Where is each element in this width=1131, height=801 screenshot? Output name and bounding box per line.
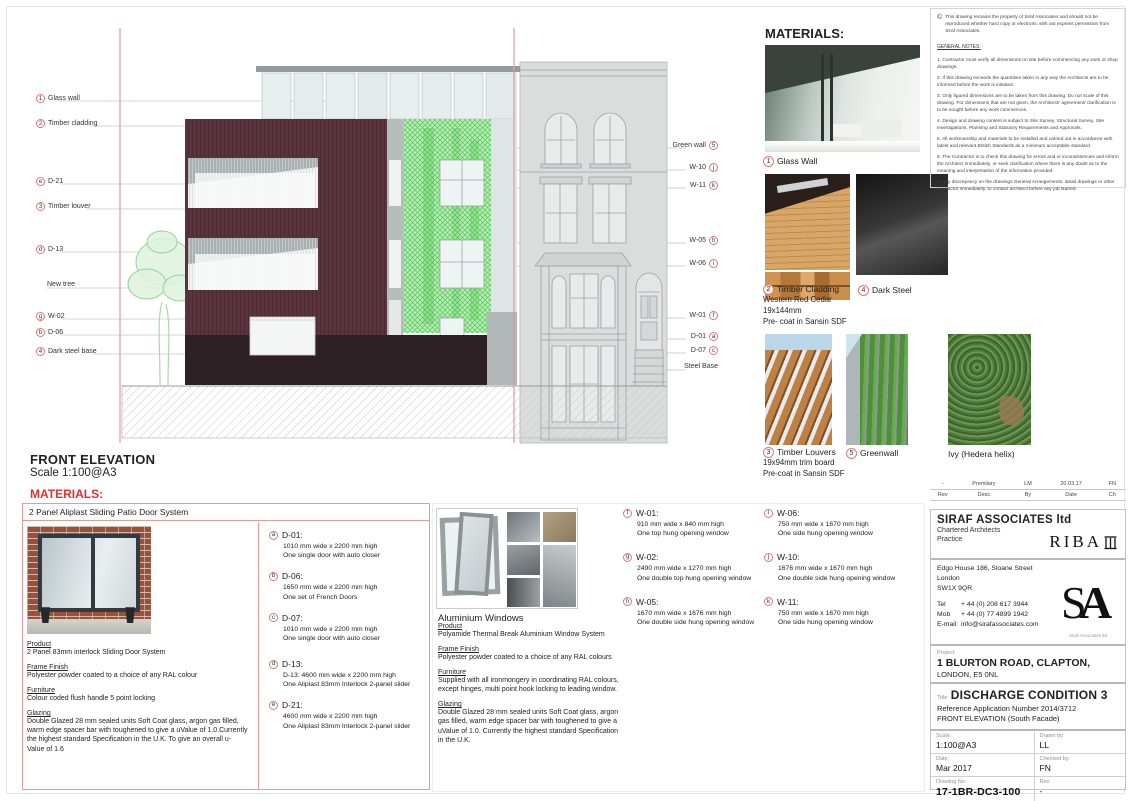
frame-finish-label: Frame Finish bbox=[27, 664, 248, 671]
siraf-associates-logo: S A Siraf Associates ltd bbox=[1057, 580, 1119, 638]
greenwall-photo bbox=[846, 334, 908, 445]
product-label: Product bbox=[27, 641, 248, 648]
note: 2. If this drawing exceeds the quantitie… bbox=[937, 75, 1119, 89]
meta-grid: Scale:1:100@A3 Drawn by:LL Date:Mar 2017… bbox=[931, 731, 1125, 801]
note: 4. Design and drawing content is subject… bbox=[937, 118, 1119, 132]
marker-4-icon: 4 bbox=[36, 347, 45, 356]
callout-d06: bD-06 bbox=[36, 328, 63, 337]
note: 7. Any discrepancy on the drawings Gener… bbox=[937, 179, 1119, 193]
materials-heading: MATERIALS: bbox=[765, 26, 844, 41]
window-schedule-item: gW-02: 2490 mm wide x 1270 mm high One d… bbox=[623, 552, 763, 582]
marker-d-icon: d bbox=[36, 245, 45, 254]
callout-d01: D-01a bbox=[558, 332, 718, 341]
contact-section: Edgo House 186, Sloane Street London SW1… bbox=[931, 560, 1125, 646]
project-address-line1: 1 BLURTON ROAD, CLAPTON, bbox=[937, 657, 1119, 669]
general-notes-panel: © This drawing remains the property of S… bbox=[930, 8, 1126, 188]
door-schedule-item: cD-07: 1010 mm wide x 2200 mm high One s… bbox=[269, 613, 425, 643]
callout-green-wall: Green wall5 bbox=[558, 141, 718, 150]
marker-j-icon: j bbox=[709, 163, 718, 172]
timber-cladding-label: 2Timber Cladding Western Red Cedar 19x14… bbox=[763, 284, 858, 327]
marker-b-icon: b bbox=[36, 328, 45, 337]
marker-k-icon: k bbox=[709, 181, 718, 190]
door-spec-left-column: Product 2 Panel 83mm interlock Sliding D… bbox=[23, 522, 258, 789]
callout-d21: eD-21 bbox=[36, 177, 63, 186]
callout-w10: W-10j bbox=[558, 163, 718, 172]
louver-band-1 bbox=[188, 158, 318, 208]
timber-cladding-photo bbox=[765, 174, 850, 270]
riba-crest-icon bbox=[1104, 535, 1117, 550]
door-spec-header: 2 Panel Aliplast Sliding Patio Door Syst… bbox=[23, 504, 429, 521]
rooftop-glass-wall bbox=[262, 73, 516, 119]
revision-table: - Premilary LM 20.03.17 FN Rev Desc By D… bbox=[930, 479, 1126, 501]
timber-louvers-label: 3Timber Louvers 19x94mm trim board Pre-c… bbox=[763, 447, 858, 480]
callout-w02: gW-02 bbox=[36, 312, 65, 321]
drawn-by-value: LL bbox=[1040, 740, 1120, 750]
copyright-icon: © bbox=[937, 14, 942, 36]
marker-k-icon: k bbox=[764, 597, 773, 606]
dark-steel-photo bbox=[856, 174, 948, 275]
furniture-label: Furniture bbox=[27, 687, 248, 694]
furniture-label: Furniture bbox=[438, 669, 620, 676]
glass-wall-label: 1Glass Wall bbox=[763, 156, 817, 167]
window-spec-text: Product Polyamide Thermal Break Aluminiu… bbox=[438, 623, 620, 745]
marker-c-icon: c bbox=[709, 346, 718, 355]
copyright-note: © This drawing remains the property of S… bbox=[937, 14, 1119, 36]
frame-finish-label: Frame Finish bbox=[438, 646, 620, 653]
marker-e-icon: e bbox=[36, 177, 45, 186]
callout-timber-louver: 3Timber louver bbox=[36, 202, 91, 211]
marker-h-icon: h bbox=[623, 597, 632, 606]
callout-d07: D-07c bbox=[558, 346, 718, 355]
elevation-subtitle: FRONT ELEVATION (South Facade) bbox=[937, 714, 1119, 724]
firm-name: SIRAF ASSOCIATES ltd bbox=[937, 514, 1119, 526]
window-schedule-item: jW-10: 1676 mm wide x 1670 mm high One d… bbox=[764, 552, 922, 582]
callout-glass-wall: 1Glass wall bbox=[36, 94, 80, 103]
general-notes-heading: GENERAL NOTES: bbox=[937, 44, 1119, 52]
checked-by-value: FN bbox=[1040, 763, 1120, 773]
project-address-line2: LONDON, E5 0NL bbox=[937, 670, 1119, 679]
product-text: 2 Panel 83mm interlock Sliding Door Syst… bbox=[27, 648, 248, 657]
marker-b-icon: b bbox=[269, 572, 278, 581]
door-schedule-item: aD-01: 1010 mm wide x 2200 mm high One s… bbox=[269, 530, 425, 560]
scale-value: 1:100@A3 bbox=[936, 740, 1029, 750]
callout-w01: W-01f bbox=[558, 311, 718, 320]
louver-band-2 bbox=[188, 238, 318, 290]
marker-d-icon: d bbox=[269, 660, 278, 669]
right-pillar bbox=[491, 119, 517, 337]
roof-cap bbox=[256, 66, 520, 72]
front-elevation-drawing bbox=[0, 0, 760, 450]
marker-5-icon: 5 bbox=[846, 448, 857, 459]
riba-logo: RIBA bbox=[1049, 532, 1117, 552]
revision-values-row: - Premilary LM 20.03.17 FN bbox=[930, 479, 1126, 490]
frame-finish-text: Polyester powder coated to a choice of a… bbox=[27, 671, 248, 680]
window-schedule-item: hW-05: 1670 mm wide x 1676 mm high One d… bbox=[623, 597, 763, 627]
door-schedule: aD-01: 1010 mm wide x 2200 mm high One s… bbox=[258, 522, 429, 789]
callout-w05: W-05h bbox=[558, 236, 718, 245]
callout-w11: W-11k bbox=[558, 181, 718, 190]
base-pillar bbox=[487, 312, 517, 385]
title-block: SIRAF ASSOCIATES ltd Chartered Architect… bbox=[930, 509, 1126, 790]
date-value: Mar 2017 bbox=[936, 763, 1029, 773]
new-building bbox=[185, 66, 520, 385]
note: 1. Contractor must verify all dimensions… bbox=[937, 57, 1119, 71]
dark-steel-label: 4Dark Steel bbox=[858, 285, 912, 296]
marker-f-icon: f bbox=[623, 509, 632, 518]
window-schedule-col1: fW-01: 910 mm wide x 840 mm high One top… bbox=[623, 508, 763, 641]
drawing-number-value: 17-1BR-DC3-100 bbox=[936, 786, 1029, 798]
door-schedule-item: eD-21: 4600 mm wide x 2200 mm high One A… bbox=[269, 700, 425, 730]
timber-louvers-photo bbox=[765, 334, 832, 445]
marker-5-icon: 5 bbox=[709, 141, 718, 150]
glazed-column bbox=[387, 119, 403, 337]
marker-h-icon: h bbox=[709, 236, 718, 245]
glass-wall-photo bbox=[765, 45, 920, 152]
marker-a-icon: a bbox=[269, 531, 278, 540]
callout-timber-cladding: 2Timber cladding bbox=[36, 119, 98, 128]
sliding-door-photo bbox=[27, 526, 151, 634]
contact-lines: Tel+ 44 (0) 208 617 3944 Mob+ 44 (0) 77 … bbox=[937, 600, 1047, 631]
door-spec-box: 2 Panel Aliplast Sliding Patio Door Syst… bbox=[22, 503, 430, 790]
marker-g-icon: g bbox=[623, 553, 632, 562]
firm-section: SIRAF ASSOCIATES ltd Chartered Architect… bbox=[931, 510, 1125, 560]
rev-value: - bbox=[1040, 786, 1120, 796]
marker-i-icon: i bbox=[709, 259, 718, 268]
marker-2-icon: 2 bbox=[36, 119, 45, 128]
drawing-sheet: { "sheet": { "front_elevation_title": "F… bbox=[0, 0, 1131, 800]
callout-w06: W-06i bbox=[558, 259, 718, 268]
drawing-sheet-title: DISCHARGE CONDITION 3 bbox=[951, 688, 1108, 702]
marker-e-icon: e bbox=[269, 701, 278, 710]
ground-hatch bbox=[122, 386, 667, 438]
marker-c-icon: c bbox=[269, 613, 278, 622]
marker-1-icon: 1 bbox=[36, 94, 45, 103]
greenwall-label: 5Greenwall bbox=[846, 448, 898, 459]
revision-header-row: Rev Desc By Date Ch bbox=[930, 490, 1126, 501]
callout-dark-steel-base: 4Dark steel base bbox=[36, 347, 97, 356]
marker-a-icon: a bbox=[709, 332, 718, 341]
ivy-photo bbox=[948, 334, 1031, 445]
furniture-text: Colour coded flush handle 5 point lockin… bbox=[27, 694, 248, 703]
marker-1-icon: 1 bbox=[763, 156, 774, 167]
window-schedule-item: kW-11: 750 mm wide x 1670 mm high One si… bbox=[764, 597, 922, 627]
note: 3. Only figured dimensions are to be tak… bbox=[937, 93, 1119, 115]
callout-steel-base: Steel Base bbox=[558, 363, 718, 370]
marker-3-icon: 3 bbox=[763, 447, 774, 458]
window-schedule-col2: iW-06: 750 mm wide x 1670 mm high One si… bbox=[764, 508, 922, 641]
green-wall bbox=[403, 119, 491, 344]
window-schedule-item: fW-01: 910 mm wide x 840 mm high One top… bbox=[623, 508, 763, 538]
aluminium-window-photo bbox=[436, 508, 578, 609]
marker-3-icon: 3 bbox=[36, 202, 45, 211]
callout-new-tree: New tree bbox=[47, 281, 75, 288]
callout-d13: dD-13 bbox=[36, 245, 63, 254]
door-schedule-item: bD-06: 1650 mm wide x 2200 mm high One s… bbox=[269, 571, 425, 601]
note: 5. All workmanship and materials to be i… bbox=[937, 136, 1119, 150]
reference-number: Reference Application Number 2014/3712 bbox=[937, 704, 1119, 714]
project-section: Project: 1 BLURTON ROAD, CLAPTON, LONDON… bbox=[931, 646, 1125, 684]
marker-4-icon: 4 bbox=[858, 285, 869, 296]
drawing-title: FRONT ELEVATION bbox=[30, 452, 155, 467]
title-section: Title: DISCHARGE CONDITION 3 Reference A… bbox=[931, 684, 1125, 731]
drawing-scale: Scale 1:100@A3 bbox=[30, 467, 116, 479]
ivy-label: Ivy (Hedera helix) bbox=[948, 449, 1015, 460]
dark-steel-base bbox=[185, 335, 517, 385]
glazing-label: Glazing bbox=[27, 710, 248, 717]
marker-g-icon: g bbox=[36, 312, 45, 321]
glazing-label: Glazing bbox=[438, 701, 620, 708]
marker-2-icon: 2 bbox=[763, 284, 774, 295]
timber-cladding-wall bbox=[185, 119, 403, 337]
door-schedule-item: dD-13: D-13: 4600 mm wide x 2200 mm high… bbox=[269, 659, 425, 689]
glazing-text: Double Glazed 28 mm sealed units Soft Co… bbox=[27, 717, 248, 753]
marker-f-icon: f bbox=[709, 311, 718, 320]
marker-i-icon: i bbox=[764, 509, 773, 518]
materials-heading-red: MATERIALS: bbox=[30, 487, 103, 501]
note: 6. The Contractor is to check this drawi… bbox=[937, 154, 1119, 176]
window-spec-section: Aluminium Windows Product Polyamide Ther… bbox=[432, 503, 925, 792]
window-schedule-item: iW-06: 750 mm wide x 1670 mm high One si… bbox=[764, 508, 922, 538]
marker-j-icon: j bbox=[764, 553, 773, 562]
product-label: Product bbox=[438, 623, 620, 630]
